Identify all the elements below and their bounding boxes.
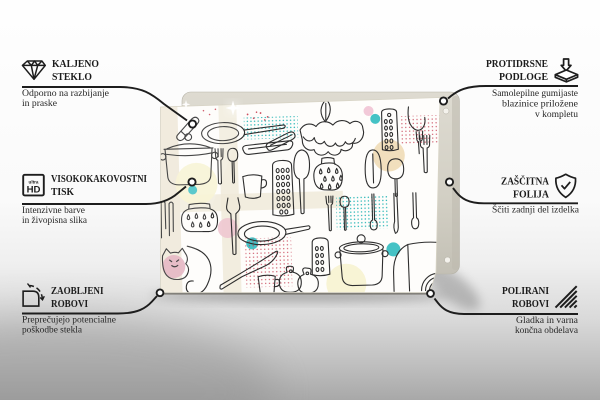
svg-text:ROBOVI: ROBOVI [512, 299, 549, 310]
svg-text:POLIRANI: POLIRANI [502, 286, 549, 297]
svg-text:Samolepilne gumijaste: Samolepilne gumijaste [492, 88, 578, 99]
svg-text:Ščiti zadnji del izdelka: Ščiti zadnji del izdelka [492, 204, 580, 216]
svg-text:TISK: TISK [51, 187, 74, 198]
svg-text:PROTIDRSNE: PROTIDRSNE [486, 59, 548, 70]
svg-text:PODLOGE: PODLOGE [499, 72, 548, 83]
svg-text:in živopisna slika: in živopisna slika [22, 215, 88, 226]
svg-text:končna obdelava: končna obdelava [515, 325, 579, 336]
svg-text:poškodbe stekla: poškodbe stekla [22, 325, 83, 336]
svg-text:STEKLO: STEKLO [52, 72, 92, 83]
svg-text:KALJENO: KALJENO [52, 59, 99, 70]
svg-text:FOLIJA: FOLIJA [513, 190, 550, 201]
svg-text:ROBOVI: ROBOVI [51, 299, 88, 310]
svg-text:ZAŠČITNA: ZAŠČITNA [501, 175, 550, 188]
svg-text:in praske: in praske [22, 98, 57, 109]
svg-text:blazinice priložene: blazinice priložene [502, 99, 578, 110]
svg-text:VISOKOKAKOVOSTNI: VISOKOKAKOVOSTNI [51, 174, 147, 185]
svg-text:v kompletu: v kompletu [535, 109, 578, 120]
svg-text:ZAOBLJENI: ZAOBLJENI [51, 286, 104, 297]
svg-text:HD: HD [27, 185, 41, 196]
